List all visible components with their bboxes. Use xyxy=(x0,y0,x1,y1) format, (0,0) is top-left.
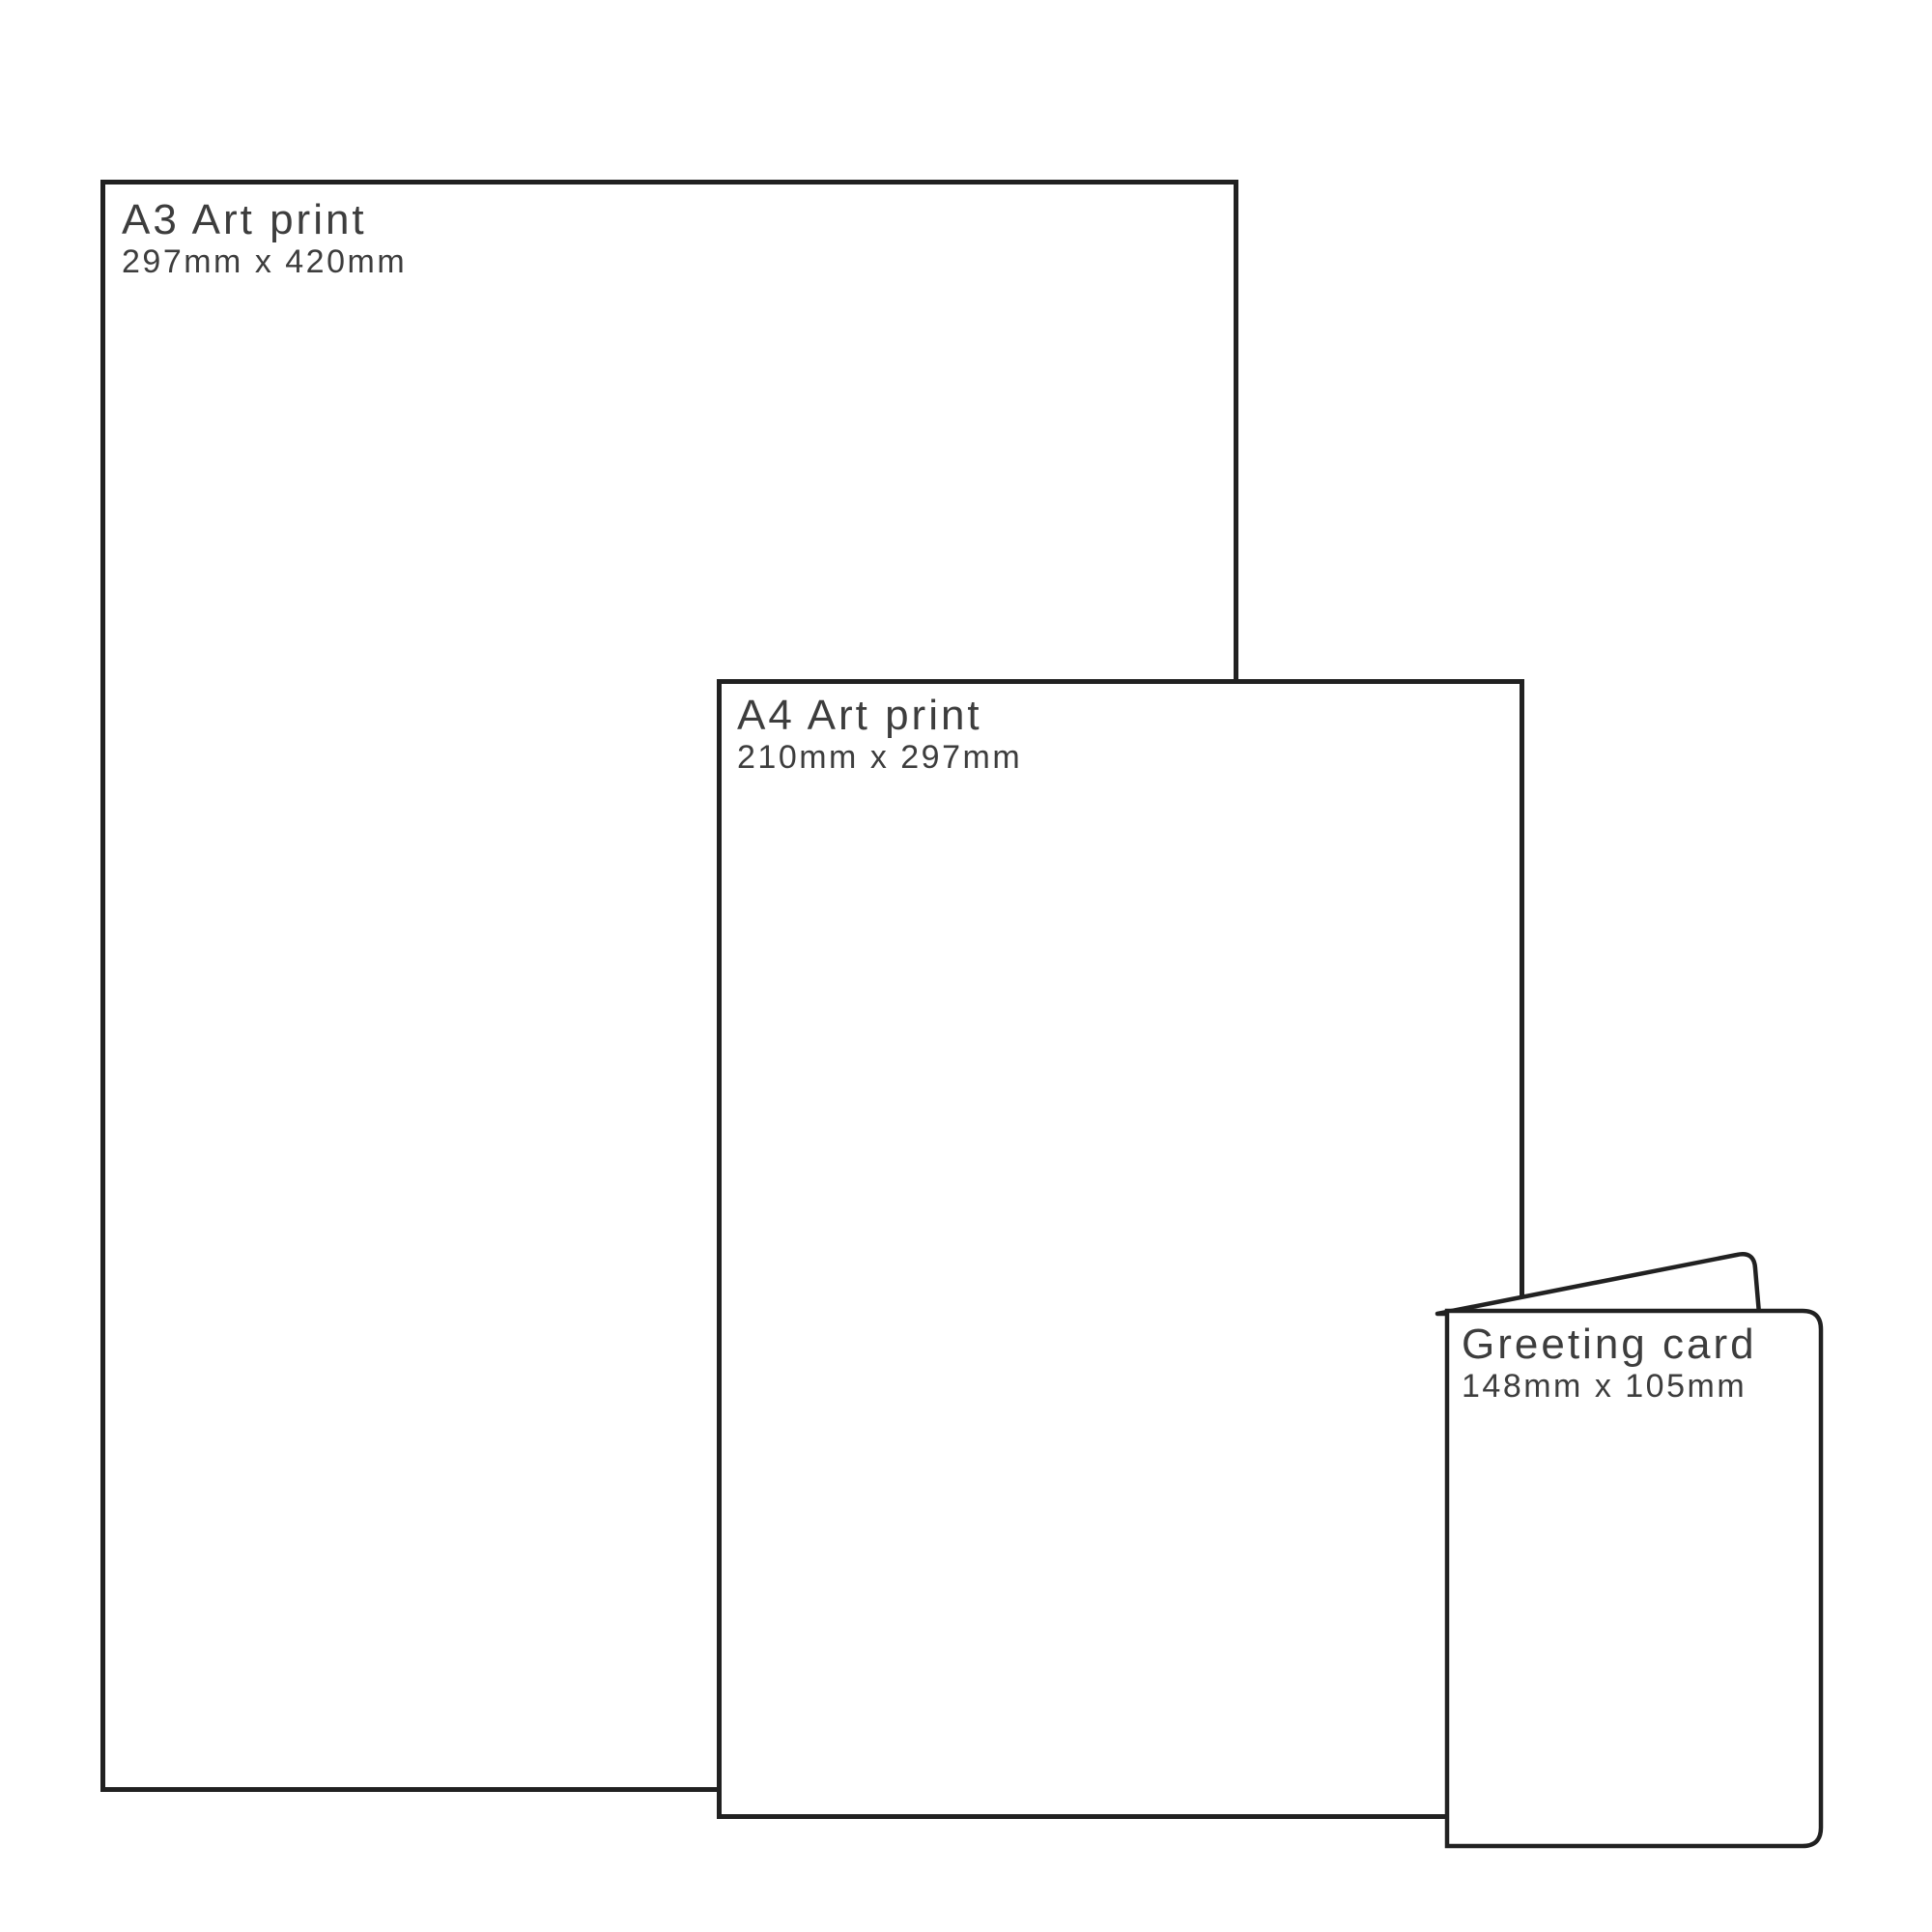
greeting-card-back-flap xyxy=(1437,1254,1759,1314)
size-comparison-diagram: A3 Art print 297mm x 420mm A4 Art print … xyxy=(0,0,1932,1932)
greeting-card-title: Greeting card xyxy=(1462,1322,1757,1367)
greeting-card-dimensions: 148mm x 105mm xyxy=(1462,1367,1757,1406)
greeting-card-label: Greeting card 148mm x 105mm xyxy=(1462,1322,1757,1406)
greeting-card-shape xyxy=(0,0,1932,1932)
